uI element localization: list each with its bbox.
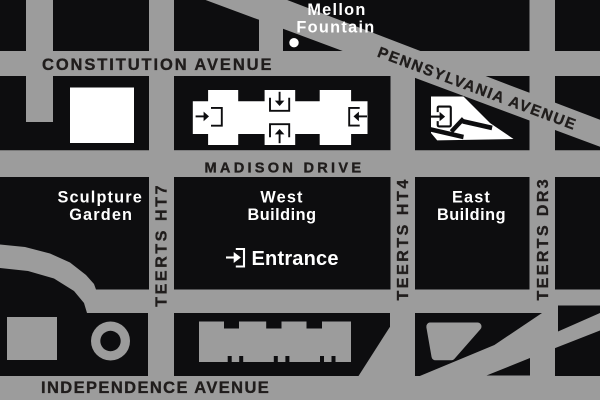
svg-text:Entrance: Entrance <box>252 248 339 270</box>
svg-text:TEERTS HT7: TEERTS HT7 <box>154 183 171 307</box>
svg-text:Mellon: Mellon <box>307 1 366 19</box>
svg-text:INDEPENDENCE AVENUE: INDEPENDENCE AVENUE <box>41 379 270 397</box>
svg-text:TEERTS HT4: TEERTS HT4 <box>395 177 412 300</box>
svg-text:MADISON DRIVE: MADISON DRIVE <box>205 161 365 177</box>
svg-text:TEERTS DR3: TEERTS DR3 <box>535 177 552 301</box>
svg-text:Fountain: Fountain <box>296 19 375 37</box>
svg-text:Building: Building <box>437 206 506 224</box>
svg-text:Building: Building <box>247 206 316 224</box>
svg-text:East: East <box>452 189 491 207</box>
svg-text:Garden: Garden <box>69 206 133 224</box>
svg-text:West: West <box>260 189 303 207</box>
svg-text:Sculpture: Sculpture <box>57 189 142 207</box>
svg-text:CONSTITUTION AVENUE: CONSTITUTION AVENUE <box>42 56 273 74</box>
